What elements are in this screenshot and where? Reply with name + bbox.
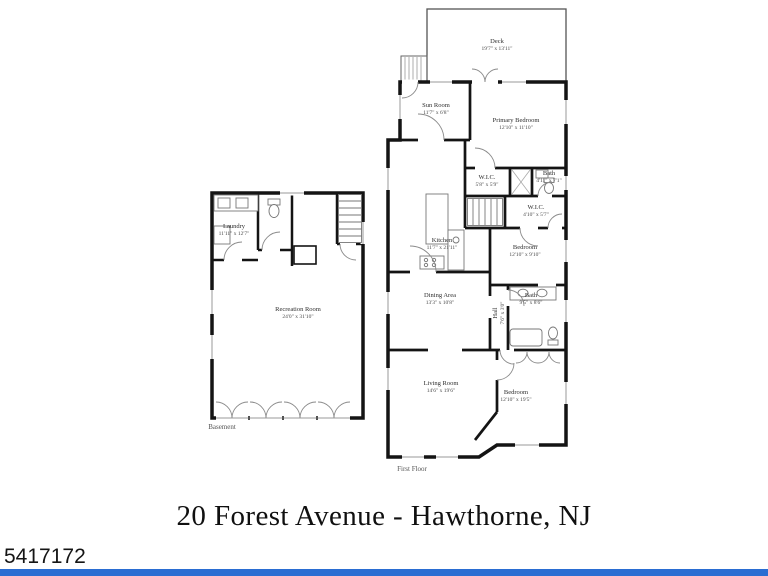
room-dims: 12'10" x 11'10" bbox=[493, 125, 540, 132]
room-dims: 4'11" x 7'1" bbox=[536, 178, 562, 185]
room-name: Kitchen bbox=[427, 237, 458, 245]
room-name: Bedroom bbox=[500, 389, 531, 397]
room-dims: 19'7" x 13'11" bbox=[481, 46, 512, 53]
room-label-recreation-room: Recreation Room 24'0" x 31'10" bbox=[275, 306, 321, 320]
room-dims: 13'3" x 10'8" bbox=[424, 300, 456, 307]
room-dims: 12'10" x 19'5" bbox=[500, 397, 531, 404]
room-label-living-room: Living Room 14'6" x 19'6" bbox=[424, 380, 459, 394]
room-name: W.I.C. bbox=[476, 174, 499, 182]
room-dims: 9'5" x 8'6" bbox=[520, 300, 543, 307]
room-name: Recreation Room bbox=[275, 306, 321, 314]
room-dims: 12'10" x 9'10" bbox=[509, 252, 540, 259]
first-floor-plan bbox=[388, 9, 566, 457]
room-label-bedroom-bottom: Bedroom 12'10" x 19'5" bbox=[500, 389, 531, 403]
floorplan-page: Deck 19'7" x 13'11" Sun Room 11'7" x 6'8… bbox=[0, 0, 768, 576]
room-dims: 11'7" x 6'8" bbox=[422, 110, 450, 117]
room-label-wic-2: W.I.C. 4'10" x 5'7" bbox=[523, 204, 549, 218]
room-name: Bath bbox=[520, 292, 543, 300]
deck-stairs bbox=[401, 56, 427, 82]
room-dims: 11'7" x 21'11" bbox=[427, 245, 458, 252]
footer-bar bbox=[0, 569, 768, 576]
room-label-wic-1: W.I.C. 5'8" x 5'9" bbox=[476, 174, 499, 188]
room-label-bedroom-middle: Bedroom 12'10" x 9'10" bbox=[509, 244, 540, 258]
room-label-deck: Deck 19'7" x 13'11" bbox=[481, 38, 512, 52]
room-name: Living Room bbox=[424, 380, 459, 388]
room-label-bath-upper: Bath 4'11" x 7'1" bbox=[536, 170, 562, 184]
room-label-dining-area: Dining Area 13'3" x 10'8" bbox=[424, 292, 456, 306]
room-name: Hall bbox=[492, 302, 500, 325]
room-dims: 11'11" x 12'7" bbox=[219, 231, 250, 238]
basement-caption: Basement bbox=[208, 423, 236, 431]
room-label-sun-room: Sun Room 11'7" x 6'8" bbox=[422, 102, 450, 116]
listing-id-watermark: 5417172 bbox=[4, 545, 86, 569]
room-name: Primary Bedroom bbox=[493, 117, 540, 125]
room-name: Dining Area bbox=[424, 292, 456, 300]
room-dims: 5'8" x 5'9" bbox=[476, 182, 499, 189]
first-floor-caption: First Floor bbox=[397, 465, 427, 473]
room-dims: 7'6" x 3'0" bbox=[500, 302, 507, 325]
page-title: 20 Forest Avenue - Hawthorne, NJ bbox=[0, 500, 768, 533]
room-name: Deck bbox=[481, 38, 512, 46]
room-dims: 24'0" x 31'10" bbox=[275, 314, 321, 321]
room-name: Laundry bbox=[219, 223, 250, 231]
room-dims: 4'10" x 5'7" bbox=[523, 212, 549, 219]
room-dims: 14'6" x 19'6" bbox=[424, 388, 459, 395]
house-outline bbox=[388, 82, 566, 457]
room-name: Sun Room bbox=[422, 102, 450, 110]
room-label-bath-middle: Bath 9'5" x 8'6" bbox=[520, 292, 543, 306]
floorplan-drawing bbox=[0, 0, 768, 576]
room-name: Bath bbox=[536, 170, 562, 178]
room-label-primary-bedroom: Primary Bedroom 12'10" x 11'10" bbox=[493, 117, 540, 131]
room-label-laundry: Laundry 11'11" x 12'7" bbox=[219, 223, 250, 237]
room-name: Bedroom bbox=[509, 244, 540, 252]
room-label-kitchen: Kitchen 11'7" x 21'11" bbox=[427, 237, 458, 251]
room-name: W.I.C. bbox=[523, 204, 549, 212]
room-label-hall: Hall 7'6" x 3'0" bbox=[492, 302, 506, 325]
